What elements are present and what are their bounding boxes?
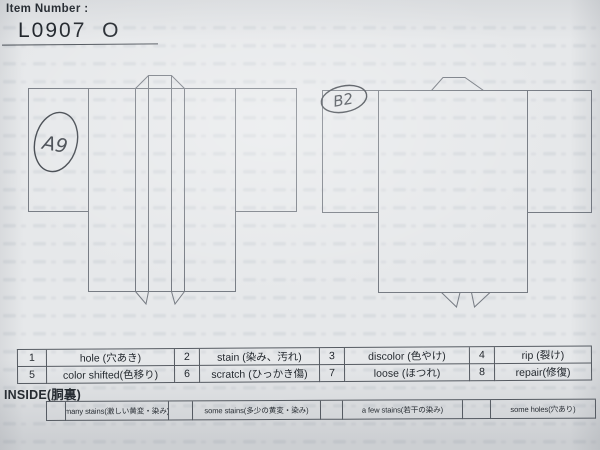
- defect-code: 6: [175, 366, 200, 383]
- back-annotation-text: B2: [332, 90, 355, 111]
- inside-label-cell: some stains(多少の黄変・染み): [193, 401, 321, 421]
- defect-code: 1: [18, 350, 47, 367]
- defect-code: 5: [18, 367, 47, 384]
- inside-label-cell: some holes(穴あり): [491, 400, 596, 419]
- item-number-label: Item Number :: [6, 3, 206, 15]
- inside-label-cell: a few stains(若干の染み): [343, 400, 463, 420]
- defect-code: 4: [470, 347, 495, 364]
- inside-checkbox-cell: [169, 401, 193, 420]
- defect-code: 8: [470, 364, 495, 381]
- inside-checkbox-cell: [47, 402, 66, 421]
- defect-label: loose (ほつれ): [345, 364, 470, 382]
- defect-label: scratch (ひっかき傷): [200, 365, 320, 383]
- header: Item Number : L0907 O: [6, 3, 206, 43]
- defect-code: 7: [320, 365, 345, 382]
- kimono-condition-sheet: A9 B2 Item Number : L0907 O 1 hole (穴あき)…: [0, 0, 600, 450]
- defect-label: hole (穴あき): [47, 349, 175, 367]
- defect-code-table: 1 hole (穴あき) 2 stain (染み、汚れ) 3 discolor …: [17, 345, 592, 384]
- defect-label: color shifted(色移り): [47, 366, 175, 384]
- inside-checkbox-cell: [463, 400, 491, 419]
- defect-code: 3: [320, 348, 345, 365]
- defect-label: stain (染み、汚れ): [200, 348, 320, 366]
- item-number-value: L0907 O: [18, 19, 206, 43]
- front-annotation-text: A9: [39, 132, 70, 158]
- defect-label: repair(修復): [495, 363, 592, 381]
- inside-checkbox-cell: [321, 401, 343, 420]
- defect-label: rip (裂け): [495, 346, 592, 364]
- inside-label-cell: many stains(激しい黄変・染み): [66, 401, 169, 420]
- defect-code: 2: [175, 349, 200, 366]
- inside-condition-table: many stains(激しい黄変・染み) some stains(多少の黄変・…: [46, 399, 596, 421]
- defect-label: discolor (色やけ): [345, 347, 470, 365]
